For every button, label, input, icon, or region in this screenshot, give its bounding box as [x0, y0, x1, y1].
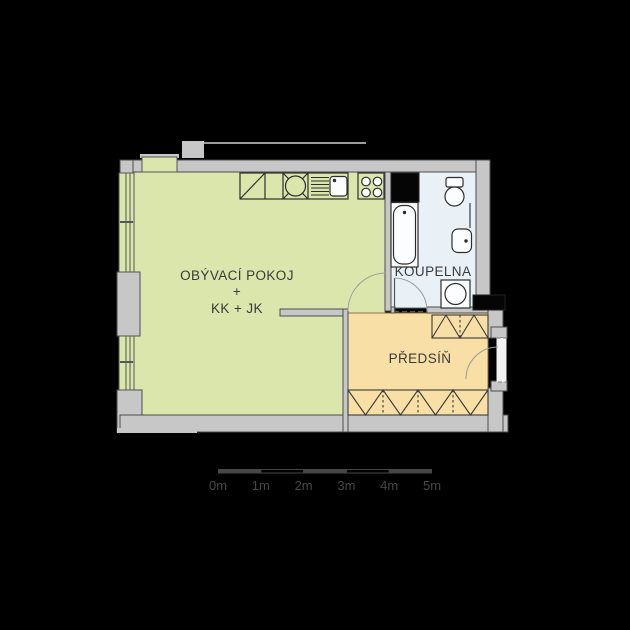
scale-segment-filled [218, 469, 261, 474]
toilet-tank-icon [446, 178, 463, 188]
appliance-circle-icon [286, 176, 306, 196]
scale-tick: 1m [252, 478, 270, 493]
hall-label: PŘEDSÍŇ [389, 351, 452, 366]
sink-tap-icon [333, 179, 336, 182]
scale-bar: 0m 1m 2m 3m 4m 5m [209, 469, 441, 493]
scale-tick: 0m [209, 478, 227, 493]
scale-segment-hollow [261, 470, 304, 474]
living-bathroom-partition [385, 172, 391, 311]
bathtub-tap-icon [403, 211, 406, 214]
living-hall-partition-stub [280, 309, 348, 316]
floor-plan-screenshot: OBÝVACÍ POKOJ + KK + JK KOUPELNA PŘEDSÍŇ… [0, 0, 630, 630]
scale-tick: 4m [380, 478, 398, 493]
hall-right-wall-lower [488, 388, 503, 432]
entry-door-leaf [497, 338, 507, 382]
chimney-vent-block [182, 141, 204, 158]
entry-door-frame-top [491, 327, 507, 338]
left-window-lower-mullion [120, 361, 133, 363]
kitchen-sink-icon [330, 177, 347, 197]
bathroom-right-wall [476, 160, 490, 310]
burner-icon [373, 177, 382, 186]
scale-tick: 3m [337, 478, 355, 493]
shaft-hall [473, 295, 505, 310]
scale-tick: 5m [423, 478, 441, 493]
living-hall-partition [343, 309, 348, 432]
scale-segment-filled [304, 469, 347, 474]
scale-segment-filled [389, 469, 432, 474]
shaft-kitchen [391, 173, 419, 202]
bathroom-label: KOUPELNA [395, 264, 472, 279]
scale-tick-labels: 0m 1m 2m 3m 4m 5m [209, 478, 441, 493]
burner-icon [362, 177, 371, 186]
toilet-bowl-icon [445, 187, 464, 206]
top-window [142, 157, 177, 172]
burner-icon [373, 188, 382, 197]
scale-segment-hollow [346, 470, 389, 474]
living-room-label-line2: KK + JK [211, 301, 263, 316]
upper-structure-line [190, 142, 366, 144]
living-room-label-line1: OBÝVACÍ POKOJ [180, 268, 294, 283]
washbasin-tap-icon [464, 239, 467, 242]
left-window-upper-mullion [120, 221, 133, 223]
floor-plan-canvas: OBÝVACÍ POKOJ + KK + JK KOUPELNA PŘEDSÍŇ… [0, 0, 630, 630]
washbasin-icon [452, 229, 472, 253]
scale-tick: 2m [295, 478, 313, 493]
left-wall-pier-mid [117, 272, 140, 336]
burner-icon [362, 188, 371, 197]
bottom-wall-step [117, 428, 197, 433]
living-room-label-plus: + [233, 284, 241, 299]
